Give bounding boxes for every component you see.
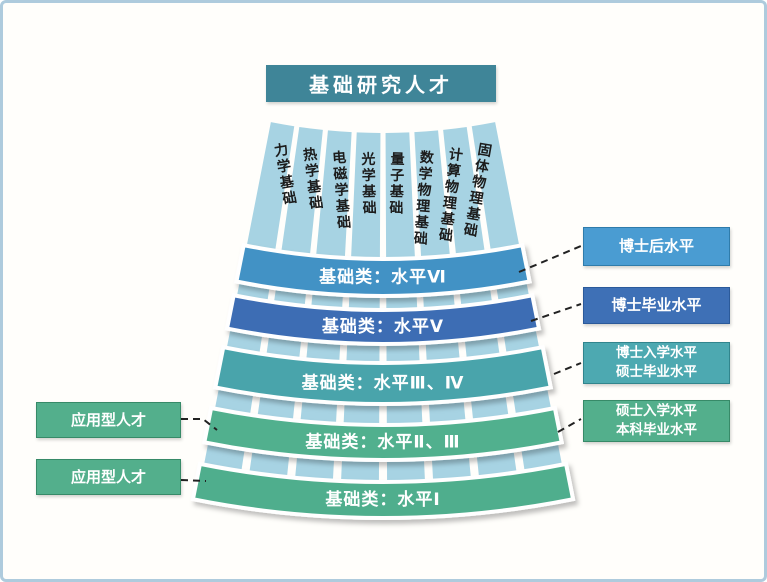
connector-line: [554, 363, 581, 374]
fan-column-label: 光学基础: [360, 151, 378, 217]
label-postdoc-level: 博士后水平: [583, 227, 730, 266]
label-text: 硕士毕业水平: [616, 363, 697, 382]
fan-band-label: 基础类：水平Ⅱ、Ⅲ: [304, 432, 460, 453]
fan-band-label: 基础类：水平Ⅴ: [321, 316, 444, 337]
label-text: 硕士入学水平: [616, 402, 697, 421]
fan-band-label: 基础类：水平Ⅵ: [318, 267, 447, 288]
diagram-frame: 基础类：水平Ⅵ基础类：水平Ⅴ基础类：水平Ⅲ、Ⅳ基础类：水平Ⅱ、Ⅲ基础类：水平Ⅰ力…: [0, 0, 767, 582]
fan-column-label: 量子基础: [389, 152, 406, 217]
label-applied-talent-1: 应用型人才: [36, 402, 181, 438]
fan-band-label: 基础类：水平Ⅲ、Ⅳ: [301, 373, 465, 394]
label-text: 应用型人才: [71, 410, 146, 431]
label-text: 博士入学水平: [616, 344, 697, 363]
page-title: 基础研究人才: [309, 69, 453, 98]
label-masters-entry-bachelor-graduate-level: 硕士入学水平 本科毕业水平: [583, 400, 730, 442]
label-text: 应用型人才: [71, 467, 146, 488]
label-applied-talent-2: 应用型人才: [36, 459, 181, 495]
label-phd-entry-masters-graduate-level: 博士入学水平 硕士毕业水平: [583, 342, 730, 384]
label-phd-graduate-level: 博士毕业水平: [583, 287, 730, 324]
fan-band-label: 基础类：水平Ⅰ: [324, 489, 440, 510]
label-text: 博士毕业水平: [611, 295, 701, 316]
connector-line: [558, 419, 581, 432]
label-text: 博士后水平: [619, 236, 694, 257]
title-box: 基础研究人才: [266, 65, 496, 102]
label-text: 本科毕业水平: [616, 421, 697, 440]
